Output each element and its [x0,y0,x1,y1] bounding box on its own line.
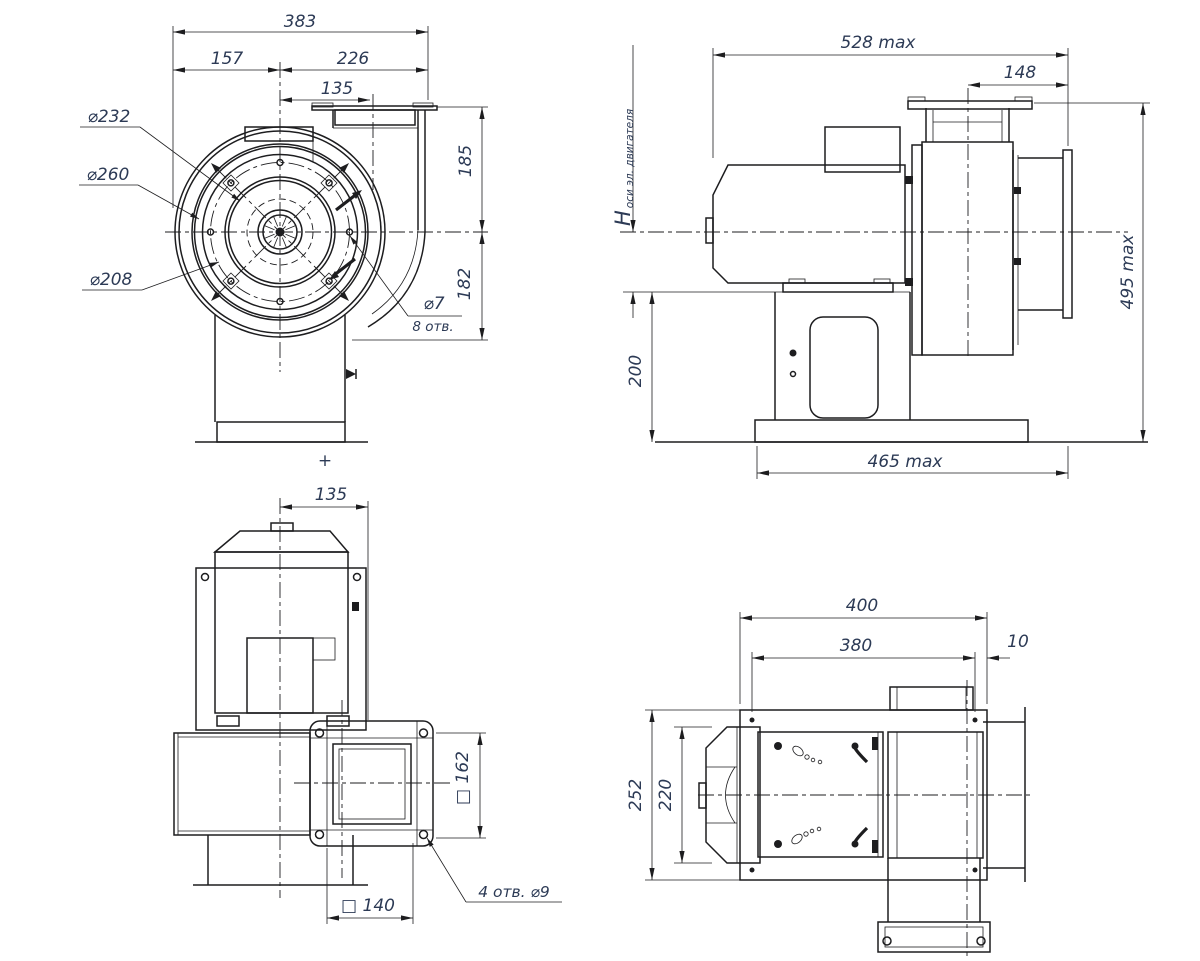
motor-mount-plate-top [758,732,883,857]
dim-label: 135 [315,485,347,505]
svg-text:⌀208: ⌀208 [90,270,133,290]
pedestal-top-plate [783,283,893,292]
front-view: 383 157 226 135 185 182 ⌀232 ⌀260 [79,12,488,471]
dim-label: 495 max [1118,234,1138,310]
pedestal-base [217,422,345,442]
dim-label: 200 [626,355,646,387]
top-view: 400 380 10 252 220 [626,596,1032,958]
dim-label: 380 [840,636,872,656]
side-view: 528 max 148 Hоси эл. двигателя 200 495 m… [611,33,1150,479]
dim-label: □ 162 [453,751,473,805]
motor-body-rear [215,552,348,713]
outlet-opening [333,744,411,824]
dim-10: 10 [987,632,1029,658]
svg-text:⌀260: ⌀260 [87,165,130,185]
svg-text:⌀232: ⌀232 [88,107,131,127]
svg-text:⌀7: ⌀7 [423,294,444,314]
dim-495max: 495 max [1034,103,1150,442]
outlet-duct-top [878,858,990,952]
rear-view: 135 □ 162 □ 140 4 отв. ⌀9 [174,485,562,924]
drawing-sheet: 383 157 226 135 185 182 ⌀232 ⌀260 [0,0,1200,961]
dim-label: 400 [846,596,878,616]
inlet-flange-top [983,707,1025,882]
callout-8-holes: ⌀7 8 отв. [350,236,462,335]
motor-eyebolt [271,523,293,531]
pedestal-side [623,279,1148,442]
inlet-flange [1063,150,1072,318]
inlet-collar-side [1018,150,1072,318]
dim-label: 465 max [868,452,944,472]
dim-label: 220 [656,779,676,811]
dim-label: 383 [284,12,316,32]
dim-185-182: 185 182 [352,107,488,340]
dim-label: Hоси эл. двигателя [611,109,636,226]
hub-center [276,228,285,237]
dim-label: 157 [211,49,244,69]
side-centerlines [620,88,1128,360]
dim-135-front: 135 [280,79,370,100]
base-plate-side [755,420,1028,442]
dim-label: 182 [455,268,475,300]
dim-label: □ 140 [341,896,395,916]
dim-label: 528 max [841,33,917,53]
dim-148: 148 [968,63,1068,85]
motor-shaft-top [699,783,706,808]
dim-162: □ 162 [436,733,486,838]
dim-label: 226 [337,49,370,69]
outlet-flange-rear [310,721,433,846]
dim-200: 200 [626,292,652,442]
motor-side [706,127,905,283]
dim-label: 185 [456,145,476,177]
dim-528max: 528 max [713,33,1068,158]
motor-shaft-end [706,218,713,243]
dim-label: 148 [1004,63,1037,83]
scroll-housing-rear [174,733,310,835]
scroll-housing-top [888,687,983,858]
outlet-flange-tab [890,687,973,710]
top-centerlines [698,680,1032,958]
dim-label: 135 [321,79,353,99]
dim-motor-axis-height: Hоси эл. двигателя [611,45,636,318]
pedestal-cutout [810,317,878,418]
svg-text:4 отв. ⌀9: 4 отв. ⌀9 [478,883,549,901]
scroll-front-plate [912,145,922,355]
pedestal-front [195,315,368,442]
scroll-housing-side [905,142,1021,355]
outlet-duct-side [908,97,1032,142]
callout-4-holes: 4 отв. ⌀9 [427,838,562,902]
dim-380: 380 [752,636,975,712]
dim-140: □ 140 [327,843,413,924]
dim-label: 252 [626,779,646,811]
dim-465max: 465 max [757,446,1068,479]
drain-plug [346,369,356,379]
fan-technical-drawing: 383 157 226 135 185 182 ⌀232 ⌀260 [0,0,1200,961]
plus-mark: + [318,451,332,471]
dim-label: 10 [1007,632,1029,652]
motor-rear [196,523,366,730]
svg-text:8 отв.: 8 отв. [412,319,453,335]
outlet-flange [908,101,1032,109]
motor-flange-plate [196,568,366,730]
dim-157-226: 157 226 [173,49,428,70]
